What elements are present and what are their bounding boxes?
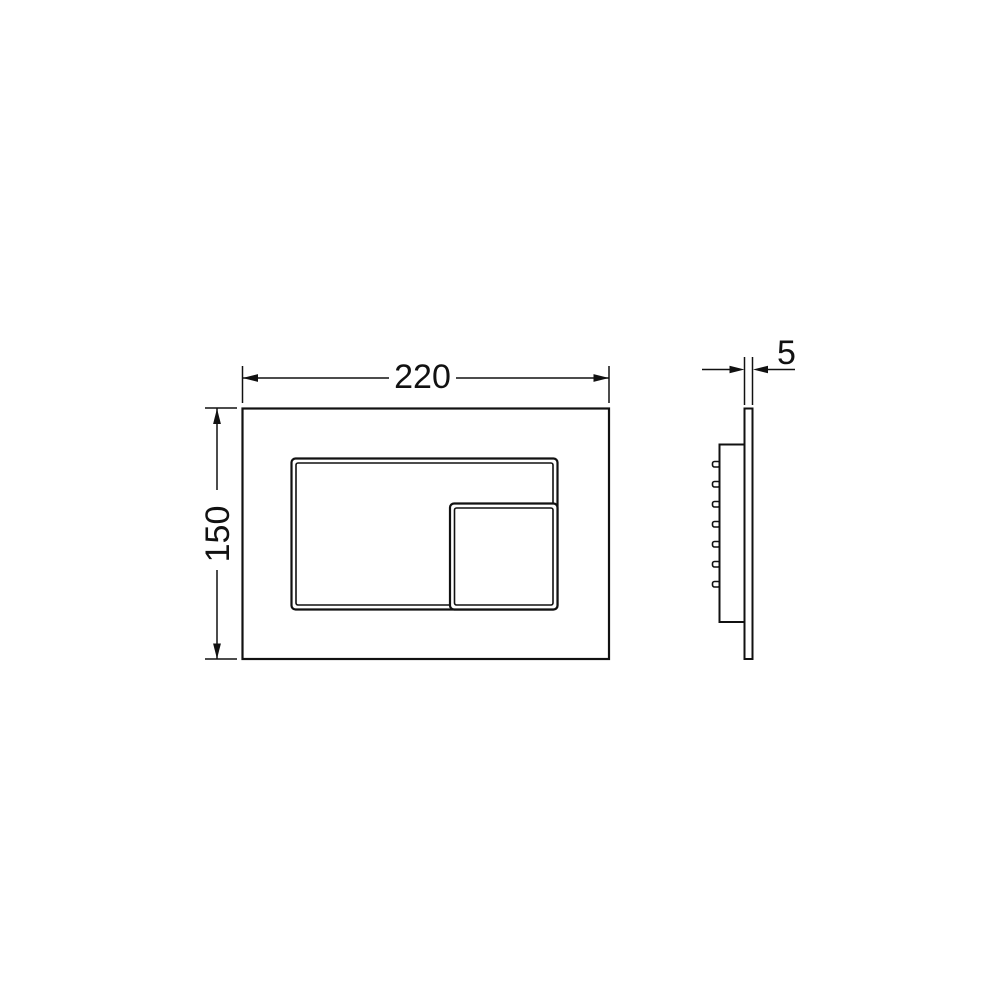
- arrowhead-down-icon: [213, 644, 221, 660]
- arrowhead-up-icon: [213, 409, 221, 425]
- dimension-thickness: 5: [702, 334, 796, 405]
- technical-drawing-canvas: 220 150: [0, 0, 1000, 1000]
- dimension-width: 220: [243, 358, 610, 403]
- arrowhead-right-icon: [594, 374, 610, 382]
- arrowhead-left-icon: [753, 366, 768, 374]
- dimension-height: 150: [199, 408, 237, 659]
- front-view: [243, 409, 610, 660]
- small-button-outline-outer: [450, 504, 558, 610]
- flush-plate-technical-drawing: 220 150: [0, 0, 1000, 1000]
- width-dimension-label: 220: [394, 358, 451, 396]
- side-view: [713, 409, 753, 660]
- plate-side-profile: [745, 409, 753, 660]
- arrowhead-left-icon: [243, 374, 259, 382]
- thickness-dimension-label: 5: [777, 334, 796, 372]
- mounting-frame-side-profile: [720, 445, 745, 623]
- height-dimension-label: 150: [199, 506, 237, 563]
- arrowhead-right-icon: [730, 366, 745, 374]
